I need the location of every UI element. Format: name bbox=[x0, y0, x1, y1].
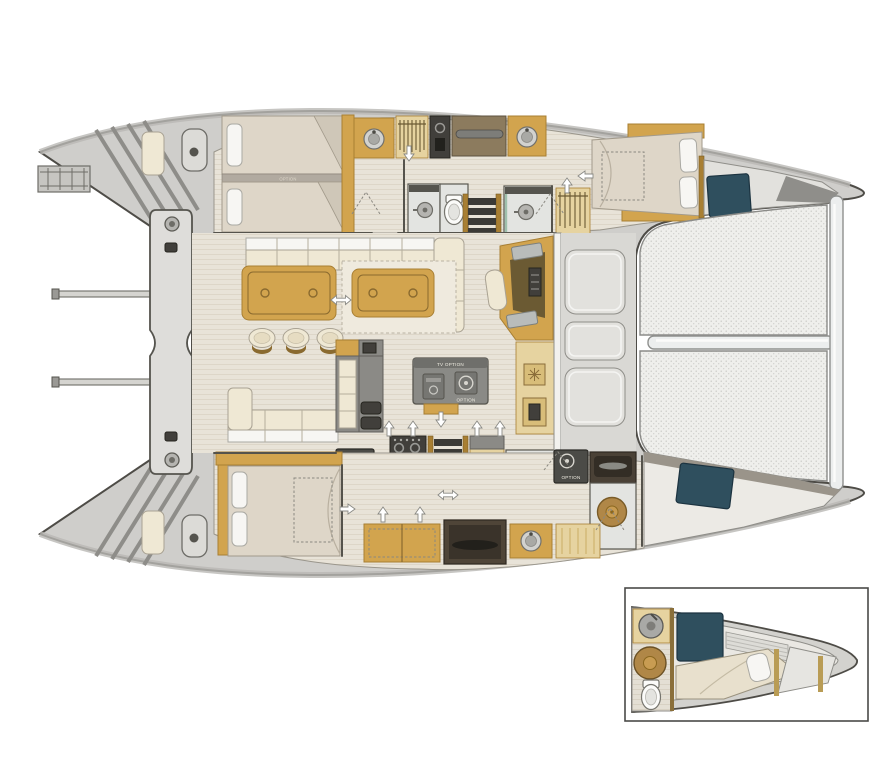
option-label: OPTION bbox=[279, 177, 296, 182]
inset-sink bbox=[633, 609, 670, 643]
deck-hatch-teal bbox=[676, 463, 734, 509]
inset-deck-hatch bbox=[677, 613, 723, 661]
port-aft-cushion bbox=[142, 132, 164, 175]
berth-pillow bbox=[679, 139, 698, 173]
berth-alcove bbox=[444, 520, 506, 564]
fridge-cabinet bbox=[516, 342, 554, 434]
toilet-icon bbox=[445, 195, 464, 225]
galley-sink bbox=[361, 417, 381, 429]
catamaran-floorplan: OPTION bbox=[0, 0, 896, 768]
forward-crossbeam bbox=[830, 196, 843, 490]
deck-hatch-teal bbox=[707, 174, 752, 218]
cleat-port bbox=[165, 243, 177, 252]
coffee-table bbox=[352, 269, 434, 317]
systems-cabinet bbox=[430, 116, 450, 158]
trampoline-center-bar bbox=[648, 336, 834, 349]
foredeck bbox=[561, 233, 636, 453]
headboard bbox=[218, 465, 228, 555]
option-label: OPTION bbox=[561, 475, 580, 480]
foredeck-pad bbox=[565, 250, 625, 314]
starboard-aft-cushion bbox=[142, 511, 164, 554]
tv-option-label: TV OPTION bbox=[437, 362, 464, 367]
inset-toilet bbox=[642, 680, 661, 710]
storage-chest bbox=[364, 524, 440, 562]
trampoline-upper bbox=[640, 205, 827, 335]
trampoline bbox=[640, 196, 843, 490]
berth-pillow bbox=[232, 512, 247, 546]
port-aft-head bbox=[408, 184, 468, 234]
hanging-locker-top bbox=[396, 116, 428, 158]
sink-icon bbox=[517, 127, 537, 147]
port-forward-locker bbox=[556, 188, 590, 234]
inset-divider bbox=[670, 608, 674, 711]
starboard-washer: OPTION bbox=[554, 450, 588, 483]
starboard-aft-cabin bbox=[216, 452, 342, 556]
cleat-starboard bbox=[165, 432, 177, 441]
winch-aft-port bbox=[165, 217, 179, 231]
berth-2-pillow bbox=[227, 189, 242, 225]
sink-icon bbox=[521, 531, 541, 551]
floorplan-canvas: OPTION bbox=[0, 0, 896, 768]
galley-cabinets bbox=[336, 340, 383, 432]
foredeck-pad bbox=[565, 322, 625, 360]
starboard-helm-pod bbox=[182, 515, 207, 557]
berth-pillow bbox=[232, 472, 247, 508]
port-forward-shower bbox=[504, 186, 552, 234]
dining-table bbox=[242, 266, 336, 320]
berth-pillow bbox=[679, 177, 698, 209]
port-helm-pod bbox=[182, 129, 207, 171]
port-aft-cabin: OPTION bbox=[222, 115, 354, 233]
main-plan: OPTION bbox=[38, 0, 896, 575]
salon-forward-wall bbox=[554, 233, 561, 453]
port-hull-top-strip bbox=[354, 116, 546, 158]
swim-ladder bbox=[38, 166, 90, 192]
berth-1-pillow bbox=[227, 124, 242, 166]
davit-arms bbox=[52, 289, 154, 387]
island-washer bbox=[455, 372, 477, 394]
stool bbox=[283, 329, 309, 355]
side-counter bbox=[452, 116, 506, 156]
galley-sink bbox=[361, 402, 381, 414]
berth-foot-shelf bbox=[342, 115, 354, 233]
winch-aft-starboard bbox=[165, 453, 179, 467]
sink-icon bbox=[364, 129, 384, 149]
stool bbox=[249, 329, 275, 355]
bow-bulkhead bbox=[699, 156, 704, 218]
port-forward-cabin bbox=[592, 124, 704, 221]
option-label: OPTION bbox=[456, 398, 475, 403]
foredeck-pad bbox=[565, 368, 625, 426]
bow-detail-inset bbox=[625, 588, 868, 721]
